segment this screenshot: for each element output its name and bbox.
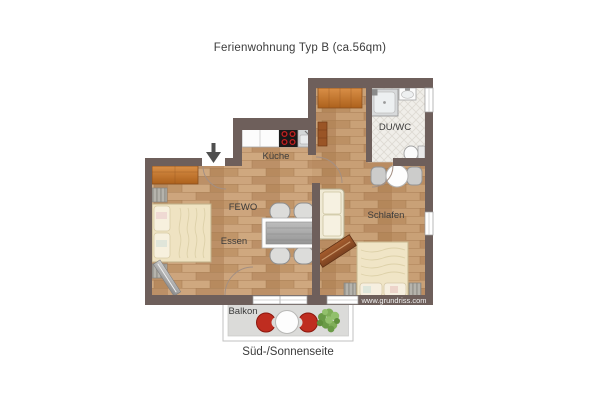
round-table	[386, 165, 408, 187]
bedroom-balcony-window	[327, 296, 358, 304]
chair	[407, 167, 422, 185]
hall-cabinet	[318, 122, 327, 146]
chair	[371, 167, 386, 185]
watermark: www.grundriss.com	[360, 296, 426, 305]
orientation-label: Süd-/Sonnenseite	[242, 346, 333, 358]
dining-table	[262, 218, 317, 248]
floorplan-svg: Ferienwohnung Typ B (ca.56qm) Küche FEWO…	[0, 0, 600, 400]
bed-living	[152, 204, 211, 262]
balcony-door-window	[253, 296, 307, 304]
washbasin	[399, 88, 416, 100]
page-title: Ferienwohnung Typ B (ca.56qm)	[214, 42, 386, 54]
bedroom-window	[425, 212, 433, 235]
balcony-table	[276, 311, 299, 334]
floorplan-page: Ferienwohnung Typ B (ca.56qm) Küche FEWO…	[0, 0, 600, 400]
sofa	[317, 189, 344, 239]
sideboard	[152, 166, 198, 184]
room-label-balkon: Balkon	[228, 306, 257, 317]
entry-arrow-icon	[206, 143, 221, 163]
room-label-schlafen: Schlafen	[368, 210, 405, 221]
room-label-essen: Essen	[221, 236, 247, 247]
shower	[371, 89, 398, 116]
stove	[279, 129, 298, 147]
nightstand	[344, 283, 356, 296]
round-table-set	[371, 165, 422, 187]
wardrobe	[318, 88, 362, 108]
bathroom-window	[425, 88, 433, 112]
room-label-duwc: DU/WC	[379, 122, 411, 133]
bed-schlafen	[357, 242, 408, 297]
room-label-kueche: Küche	[263, 151, 290, 162]
nightstand	[152, 188, 167, 202]
room-label-fewo: FEWO	[229, 202, 258, 213]
nightstand	[409, 283, 421, 296]
